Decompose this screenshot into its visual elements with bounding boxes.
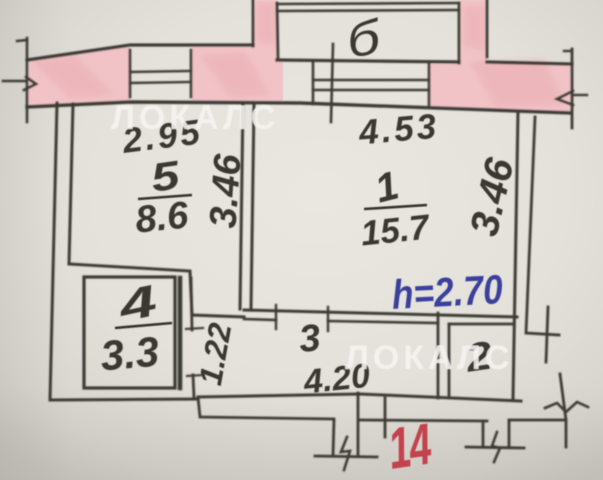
svg-text:ЛОКАЛС: ЛОКАЛС [345, 339, 513, 377]
svg-text:8.6: 8.6 [133, 194, 191, 241]
svg-text:h=2.70: h=2.70 [391, 267, 504, 319]
svg-text:3: 3 [297, 317, 322, 361]
svg-text:4.53: 4.53 [356, 107, 440, 153]
svg-text:ЛОКАЛС: ЛОКАЛС [111, 99, 279, 137]
svg-text:3.3: 3.3 [99, 328, 161, 380]
svg-text:15.7: 15.7 [359, 207, 432, 253]
svg-text:3.46: 3.46 [203, 152, 250, 230]
